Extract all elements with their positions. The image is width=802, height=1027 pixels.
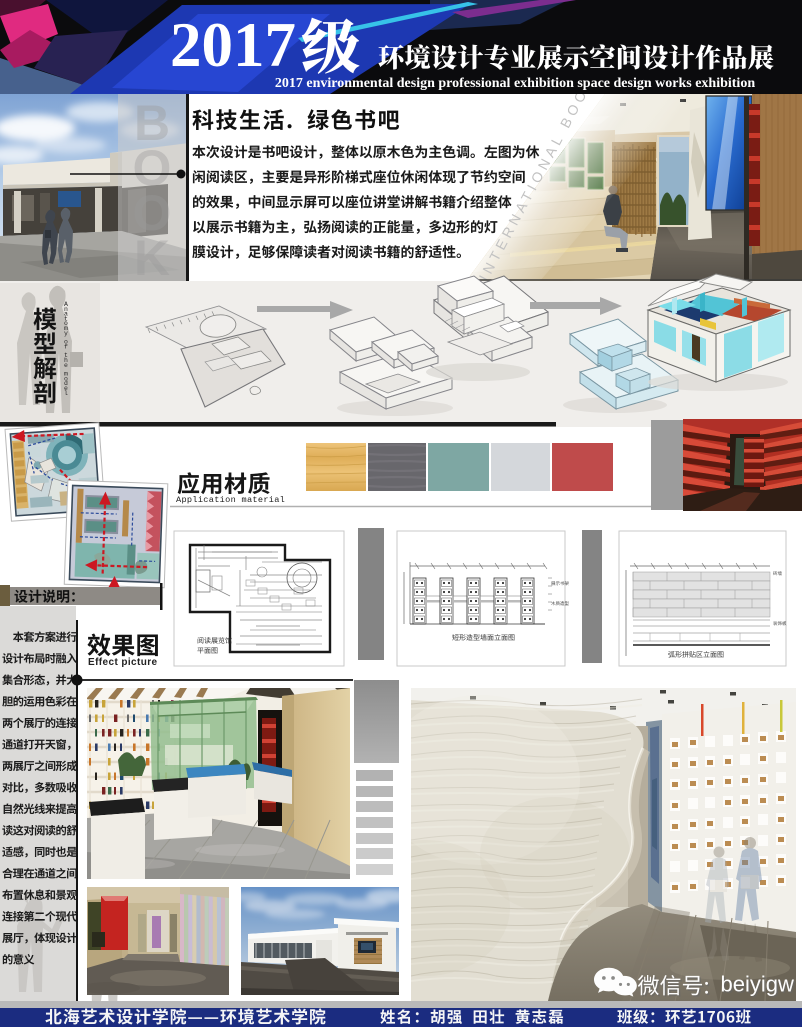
svg-text:Effect picture: Effect picture <box>88 657 158 668</box>
svg-text:2017: 2017 <box>170 10 296 80</box>
svg-text:2017 environmental design prof: 2017 environmental design professional e… <box>275 76 755 91</box>
svg-text:Application material: Application material <box>176 495 285 505</box>
svg-text:beiyigw: beiyigw <box>721 972 794 997</box>
svg-text:Anatomyofthemodel: Anatomyofthemodel <box>64 301 68 397</box>
